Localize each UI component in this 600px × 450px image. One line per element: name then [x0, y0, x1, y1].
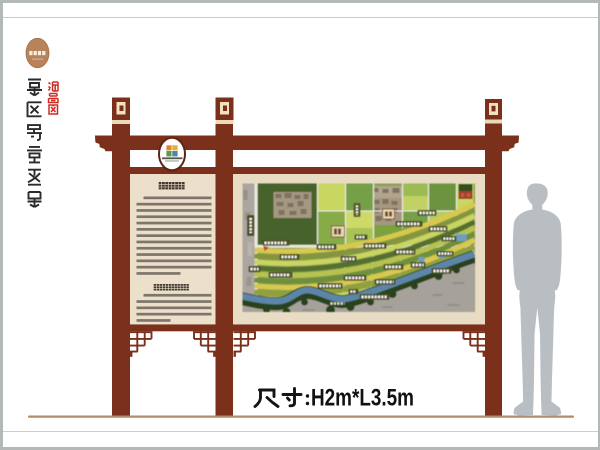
- svg-text:H2m*L3.5m: H2m*L3.5m: [311, 385, 414, 412]
